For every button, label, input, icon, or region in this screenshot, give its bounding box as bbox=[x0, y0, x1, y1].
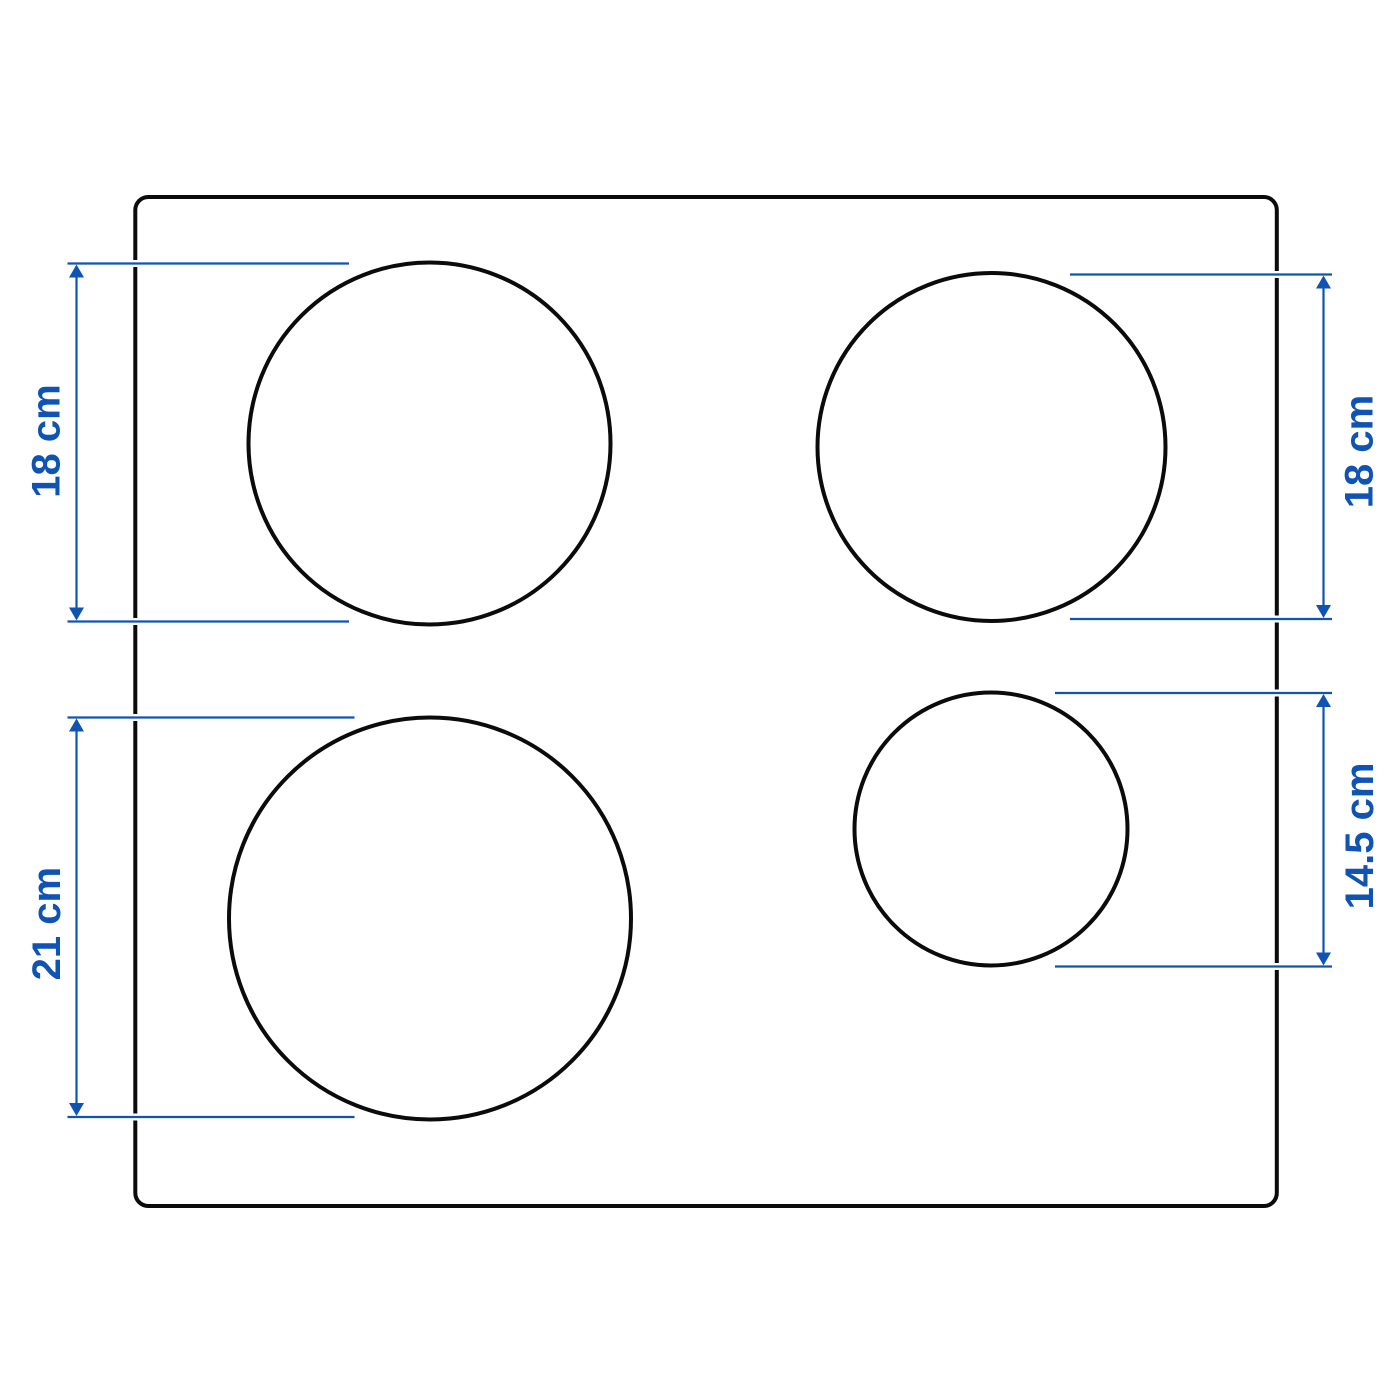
svg-text:18 cm: 18 cm bbox=[25, 384, 69, 497]
svg-text:14.5 cm: 14.5 cm bbox=[1338, 763, 1382, 910]
svg-text:18 cm: 18 cm bbox=[1338, 395, 1382, 508]
svg-text:21 cm: 21 cm bbox=[25, 867, 69, 980]
